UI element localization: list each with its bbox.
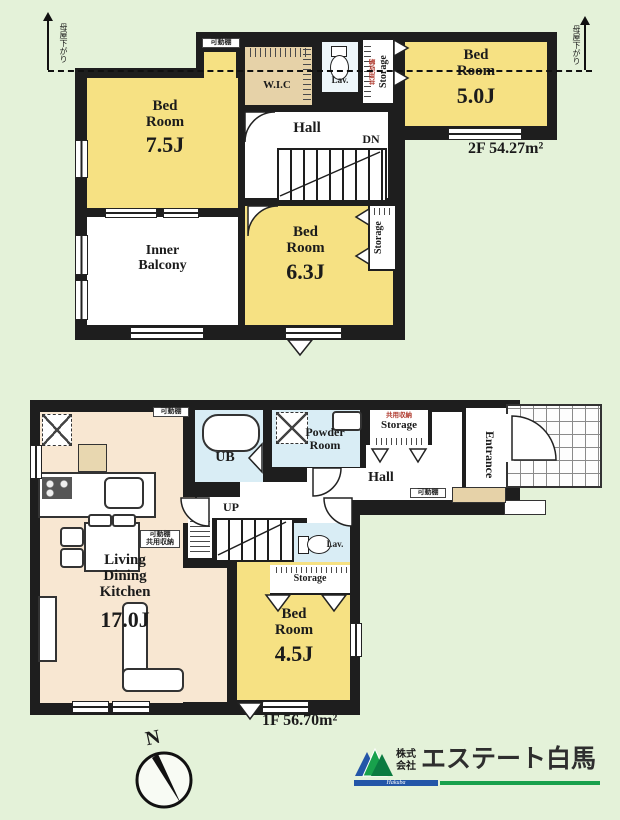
- hall2f-label: Hall: [277, 120, 337, 136]
- ub-label: UB: [200, 450, 250, 465]
- window: [112, 701, 150, 713]
- window: [30, 445, 42, 479]
- bedroom50-size: 5.0J: [426, 84, 526, 108]
- window: [75, 140, 88, 178]
- shelf-hatch: [190, 520, 210, 556]
- shelf-label-2f: 可動棚: [202, 38, 240, 48]
- company-name: エステート白馬: [421, 746, 606, 773]
- bedroom50-label: Bed Room: [426, 47, 526, 79]
- hall-1f: [432, 412, 462, 448]
- down-stairs-label: DN: [356, 133, 386, 146]
- chair: [60, 527, 84, 547]
- lav2f-label: Lav.: [322, 76, 358, 86]
- arrow-shaft: [584, 24, 586, 70]
- arrow-up-icon: [43, 12, 53, 21]
- wic-label: W.I.C: [245, 80, 309, 92]
- entrance-step: [504, 500, 546, 515]
- hall-1f: [307, 497, 352, 523]
- company-prefix: 株式 会社: [396, 749, 420, 773]
- mountain-logo-icon: [354, 744, 394, 780]
- hanger-pipe-hatch: [303, 48, 311, 104]
- moyasagari-dashed-line: [48, 70, 592, 72]
- logo-underline-blue: Hakuba: [354, 780, 438, 786]
- window: [72, 701, 109, 713]
- arrow-shaft: [47, 20, 49, 70]
- kitchen-sink-icon: [104, 477, 144, 509]
- window: [163, 208, 199, 218]
- ldk-label: Living Dining Kitchen: [70, 552, 180, 601]
- stove-icon: [42, 477, 72, 499]
- storage-hall1f-label: Storage: [372, 420, 426, 432]
- chair: [88, 514, 112, 527]
- ldk-size: 17.0J: [70, 608, 180, 632]
- storage-hall1f-sublabel: 共用収納: [372, 412, 426, 419]
- logo-underline-green: [440, 781, 600, 785]
- sofa: [122, 668, 184, 692]
- window: [130, 327, 204, 339]
- vent-marker: [288, 340, 312, 355]
- stairs-1f: [215, 518, 294, 562]
- moyasagari-note-right: 母屋下がり: [568, 12, 580, 78]
- bedroom45-label: Bed Room: [260, 606, 328, 638]
- stairs-2f: [277, 148, 387, 202]
- room-ldk-extension: [183, 568, 227, 702]
- bedroom45-size: 4.5J: [258, 642, 330, 666]
- hanger-pipe-hatch: [246, 48, 310, 57]
- entrance-label: Entrance: [474, 414, 496, 496]
- window: [75, 280, 88, 320]
- bedroom75-size: 7.5J: [110, 133, 220, 157]
- window: [448, 128, 522, 140]
- storage-hall2f-sublabel: 共用収納: [370, 44, 378, 100]
- refrigerator-space: [42, 414, 72, 446]
- arrow-up-icon: [580, 16, 590, 25]
- storage-hall2f-label: Storage: [379, 43, 391, 101]
- alcove-shelf: [204, 52, 236, 78]
- hall-1f: [366, 445, 462, 468]
- hall-1f: [240, 482, 307, 497]
- porch-door-opening: [506, 414, 514, 462]
- window: [75, 235, 88, 275]
- floor1-area-label: 1F 56.70m²: [262, 712, 392, 729]
- cupboard: [78, 444, 107, 472]
- chair: [112, 514, 136, 527]
- compass-icon: [128, 742, 200, 814]
- bathtub-icon: [202, 414, 260, 452]
- storage-bed45-label: Storage: [272, 574, 348, 585]
- window: [105, 208, 157, 218]
- lav1f-label: Lav.: [320, 540, 350, 550]
- window: [285, 327, 342, 339]
- inner-balcony-label: Inner Balcony: [100, 243, 225, 273]
- floorplan-page: 母屋下がり 母屋下がり 可動棚 Bed Room 7.5J W.I.C Lav.…: [0, 0, 620, 820]
- hall1f-label: Hall: [356, 470, 406, 485]
- powder-room-label: Powder Room: [292, 426, 358, 452]
- floor2-area-label: 2F 54.27m²: [468, 140, 593, 157]
- bedroom63-size: 6.3J: [258, 260, 353, 284]
- shelf-label-1f-top: 可動棚: [153, 407, 189, 417]
- up-stairs-label: UP: [214, 501, 248, 514]
- shelf-label-1f-hall: 可動棚: [410, 488, 446, 498]
- bedroom63-label: Bed Room: [258, 224, 353, 256]
- moyasagari-note-left: 母屋下がり: [55, 10, 67, 76]
- storage-bed63-label: Storage: [374, 212, 387, 264]
- window: [350, 623, 362, 657]
- tv-board: [38, 596, 57, 662]
- entrance-porch-tiles: [506, 404, 602, 488]
- logo-script: Hakuba: [354, 780, 438, 786]
- bedroom75-label: Bed Room: [110, 98, 220, 130]
- shelf-note-mid: 可動棚 共用収納: [140, 530, 180, 548]
